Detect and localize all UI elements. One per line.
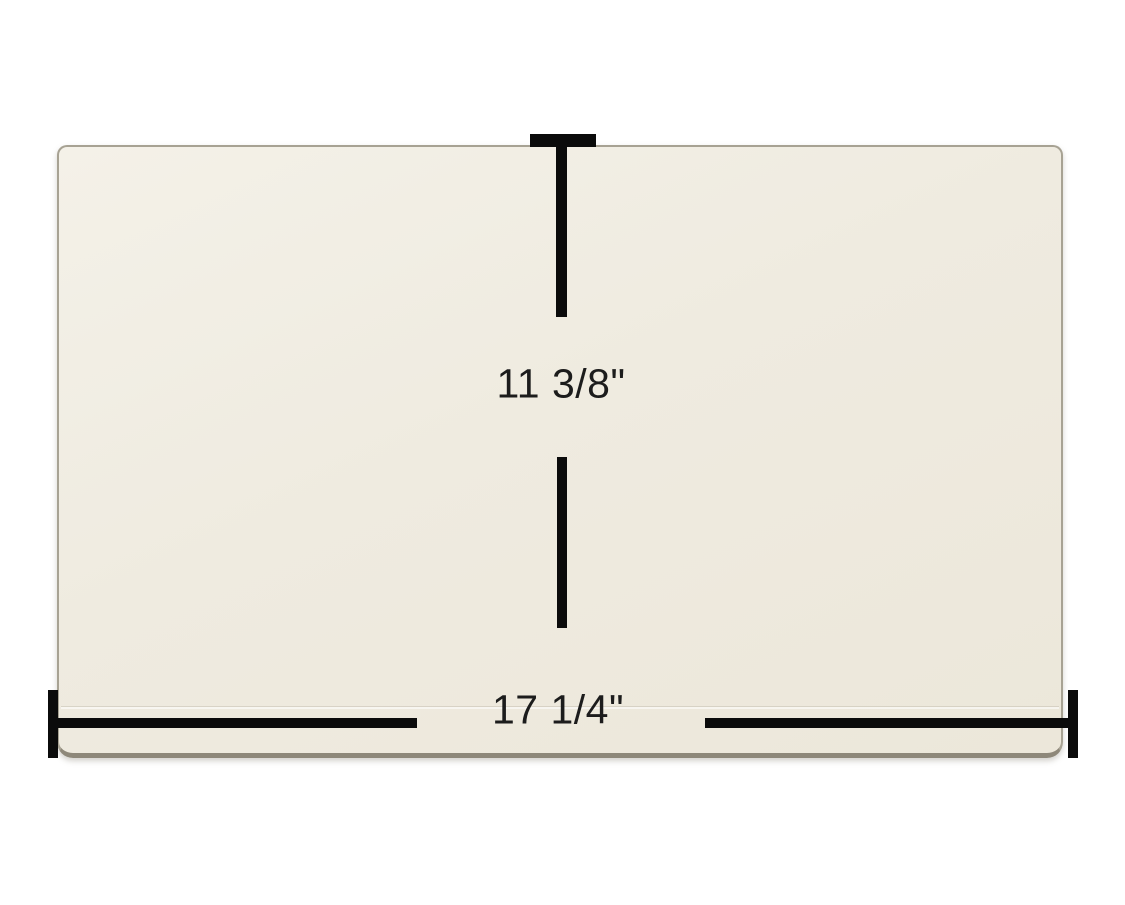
- height-dim-upper-line: [556, 140, 567, 317]
- width-dim-right-cap: [1068, 690, 1078, 758]
- height-dim-label: 11 3/8": [496, 361, 625, 408]
- width-dim-label: 17 1/4": [492, 687, 624, 734]
- height-dim-lower-line: [557, 457, 567, 628]
- product-dimension-diagram: 11 3/8" 17 1/4": [0, 0, 1125, 905]
- width-dim-left-line: [52, 718, 417, 728]
- width-dim-right-line: [705, 718, 1074, 728]
